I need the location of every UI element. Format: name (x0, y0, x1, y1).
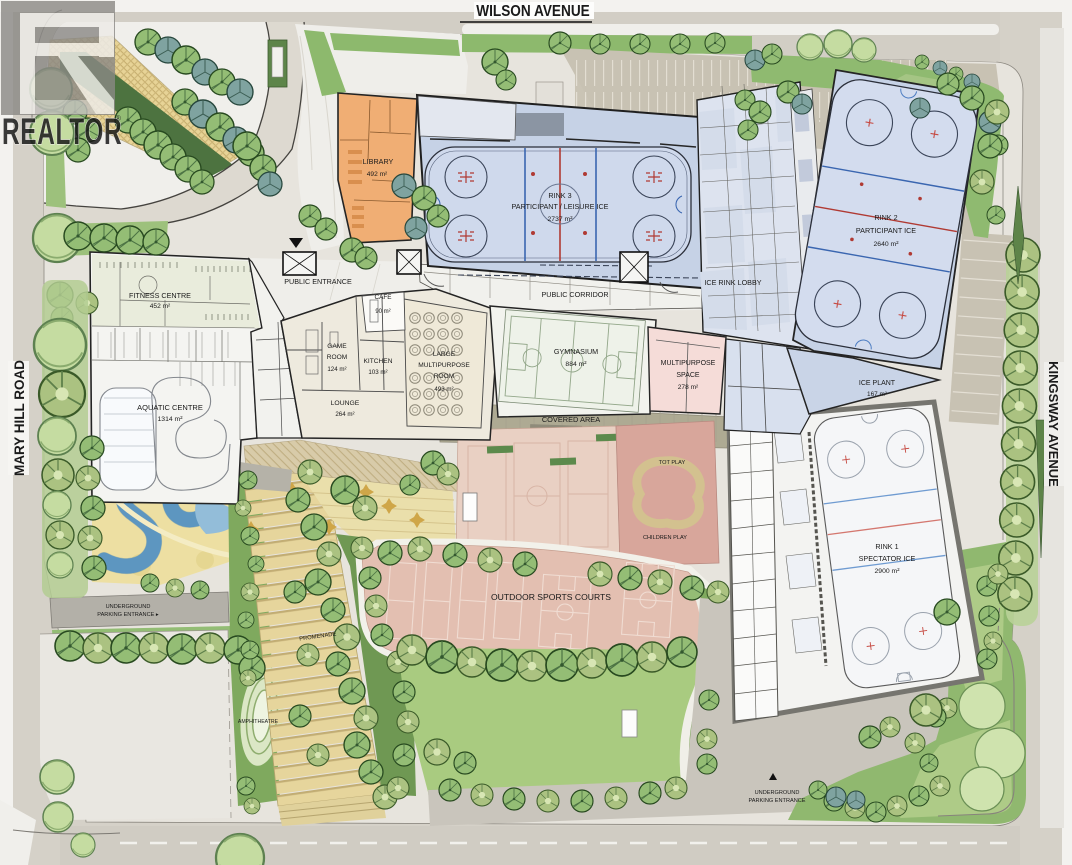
svg-text:PARKING ENTRANCE ▸: PARKING ENTRANCE ▸ (97, 612, 159, 618)
svg-text:REALTOR: REALTOR (2, 111, 122, 152)
svg-text:PARKING ENTRANCE: PARKING ENTRANCE (748, 798, 805, 804)
svg-text:CAFE: CAFE (374, 294, 391, 301)
svg-text:278 m²: 278 m² (678, 384, 699, 391)
svg-text:MARY HILL ROAD: MARY HILL ROAD (12, 360, 27, 476)
svg-text:2737 m²: 2737 m² (548, 216, 574, 223)
svg-text:1314 m²: 1314 m² (158, 416, 184, 423)
svg-text:MULTIPURPOSE: MULTIPURPOSE (661, 360, 716, 367)
svg-text:UNDERGROUND: UNDERGROUND (755, 790, 800, 796)
svg-text:RINK 3: RINK 3 (548, 191, 571, 200)
svg-text:KINGSWAY AVENUE: KINGSWAY AVENUE (1046, 361, 1061, 487)
svg-text:ROOM: ROOM (434, 373, 455, 380)
svg-text:TOT PLAY: TOT PLAY (659, 460, 686, 466)
svg-text:RINK 2: RINK 2 (874, 213, 897, 222)
svg-text:492 m²: 492 m² (367, 171, 388, 178)
svg-text:LARGE: LARGE (433, 351, 456, 358)
svg-text:MULTIPURPOSE: MULTIPURPOSE (418, 362, 470, 369)
svg-text:PUBLIC CORRIDOR: PUBLIC CORRIDOR (541, 290, 608, 299)
svg-text:AMPHITHEATRE: AMPHITHEATRE (238, 719, 279, 725)
svg-text:PARTICIPANT ICE: PARTICIPANT ICE (856, 226, 916, 235)
svg-text:WILSON AVENUE: WILSON AVENUE (476, 3, 590, 20)
svg-text:ICE RINK LOBBY: ICE RINK LOBBY (704, 278, 761, 287)
svg-text:®: ® (115, 114, 121, 123)
svg-text:103 m²: 103 m² (368, 369, 387, 376)
svg-text:CHILDREN PLAY: CHILDREN PLAY (643, 535, 687, 541)
svg-text:LOUNGE: LOUNGE (331, 400, 360, 407)
svg-text:SPECTATOR ICE: SPECTATOR ICE (859, 554, 916, 563)
svg-text:UNDERGROUND: UNDERGROUND (106, 604, 151, 610)
svg-text:COVERED AREA: COVERED AREA (542, 415, 600, 424)
svg-text:884 m²: 884 m² (565, 361, 587, 368)
svg-text:452 m²: 452 m² (150, 303, 171, 310)
svg-text:FITNESS CENTRE: FITNESS CENTRE (129, 291, 191, 300)
svg-text:2640 m²: 2640 m² (874, 241, 900, 248)
svg-text:RINK 1: RINK 1 (875, 542, 898, 551)
svg-text:PUBLIC ENTRANCE: PUBLIC ENTRANCE (284, 277, 352, 286)
svg-text:KITCHEN: KITCHEN (364, 358, 393, 365)
svg-text:ROOM: ROOM (327, 354, 348, 361)
svg-text:OUTDOOR SPORTS COURTS: OUTDOOR SPORTS COURTS (491, 592, 611, 602)
svg-text:264 m²: 264 m² (335, 411, 354, 418)
svg-text:SPACE: SPACE (676, 372, 700, 379)
svg-text:167 m²: 167 m² (867, 391, 887, 398)
svg-text:GYMNASIUM: GYMNASIUM (554, 347, 598, 356)
svg-text:PARTICIPANT / LEISURE ICE: PARTICIPANT / LEISURE ICE (512, 202, 609, 211)
svg-text:LIBRARY: LIBRARY (363, 157, 394, 166)
svg-text:493 m²: 493 m² (434, 386, 453, 393)
svg-text:2900 m²: 2900 m² (875, 568, 901, 575)
svg-text:124 m²: 124 m² (327, 366, 346, 373)
svg-text:90 m²: 90 m² (375, 309, 390, 315)
svg-text:ICE PLANT: ICE PLANT (859, 380, 896, 387)
svg-text:AQUATIC CENTRE: AQUATIC CENTRE (137, 403, 203, 412)
svg-text:GAME: GAME (327, 343, 347, 350)
